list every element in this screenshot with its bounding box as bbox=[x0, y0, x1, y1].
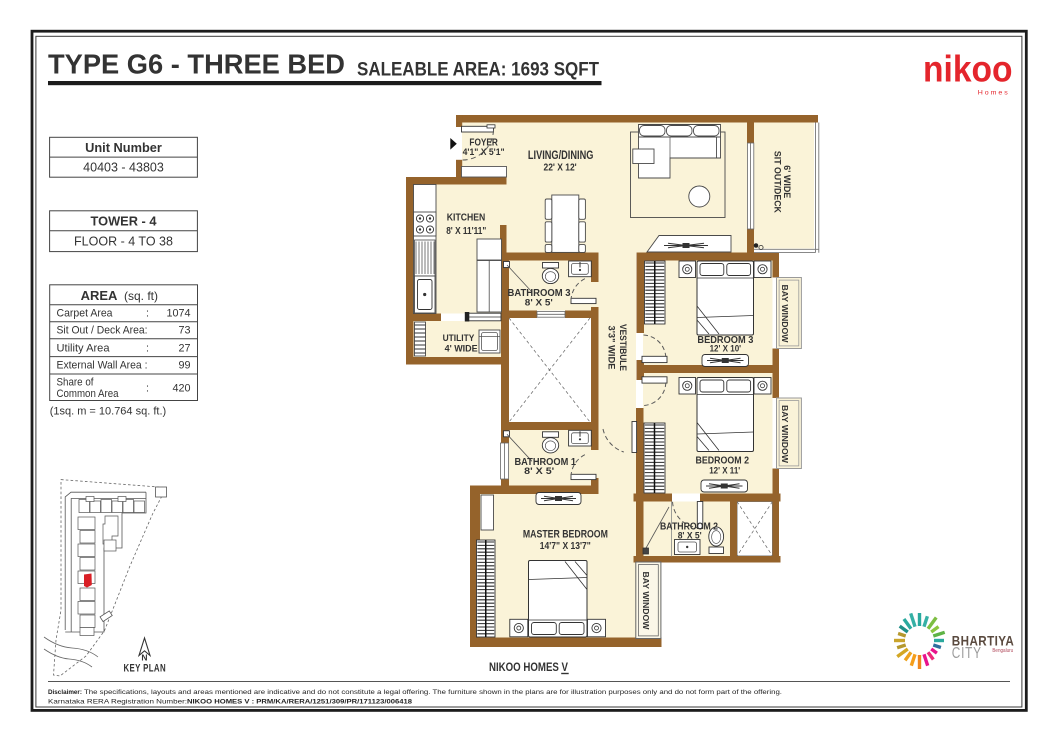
svg-text:(1sq. m = 10.764 sq. ft.): (1sq. m = 10.764 sq. ft.) bbox=[50, 406, 166, 418]
svg-text:14'7" X 13'7": 14'7" X 13'7" bbox=[540, 541, 591, 552]
svg-text:Sit Out / Deck Area:: Sit Out / Deck Area: bbox=[57, 325, 148, 337]
svg-text:NIKOO HOMES V: NIKOO HOMES V bbox=[489, 660, 568, 674]
svg-text:12' X 11': 12' X 11' bbox=[709, 465, 740, 476]
svg-text:4'1" X 5'1": 4'1" X 5'1" bbox=[463, 147, 505, 158]
svg-text::: : bbox=[146, 342, 149, 354]
svg-text:TOWER - 4: TOWER - 4 bbox=[91, 214, 158, 229]
svg-text:Carpet Area: Carpet Area bbox=[57, 308, 113, 320]
svg-text:8' X 5': 8' X 5' bbox=[524, 466, 554, 477]
svg-text:99: 99 bbox=[178, 360, 190, 372]
svg-text:TYPE G6 - THREE BED: TYPE G6 - THREE BED bbox=[48, 49, 345, 80]
svg-text:LIVING/DINING: LIVING/DINING bbox=[528, 150, 594, 162]
svg-text:KEY PLAN: KEY PLAN bbox=[124, 662, 167, 674]
svg-text:H o m e s: H o m e s bbox=[978, 90, 1009, 97]
svg-text:N: N bbox=[141, 653, 147, 663]
svg-text:4' WIDE: 4' WIDE bbox=[445, 344, 478, 355]
svg-text:SALEABLE AREA: 1693 SQFT: SALEABLE AREA: 1693 SQFT bbox=[357, 59, 599, 81]
svg-text:73: 73 bbox=[178, 325, 190, 337]
svg-text:Common Area: Common Area bbox=[57, 388, 119, 400]
svg-text::: : bbox=[146, 383, 149, 395]
svg-text:8' X 11'11": 8' X 11'11" bbox=[446, 226, 486, 237]
svg-text:FLOOR - 4 TO 38: FLOOR - 4 TO 38 bbox=[74, 235, 173, 249]
svg-text:Disclaimer:: Disclaimer: bbox=[48, 689, 82, 696]
svg-text:CITY: CITY bbox=[952, 645, 982, 662]
svg-text:nikoo: nikoo bbox=[923, 49, 1013, 90]
svg-text:(sq. ft): (sq. ft) bbox=[124, 289, 158, 303]
svg-text:External Wall Area :: External Wall Area : bbox=[57, 360, 148, 372]
svg-text:Utility Area: Utility Area bbox=[57, 342, 110, 354]
svg-text:UTILITY: UTILITY bbox=[443, 333, 475, 344]
svg-text:12' X 10': 12' X 10' bbox=[710, 344, 742, 355]
svg-text:40403 - 43803: 40403 - 43803 bbox=[83, 161, 164, 175]
svg-text:BAY WINDOW: BAY WINDOW bbox=[780, 285, 790, 344]
svg-text:The specifications, layouts an: The specifications, layouts and areas me… bbox=[84, 689, 782, 696]
svg-text:6' WIDE: 6' WIDE bbox=[781, 165, 792, 198]
svg-text:Unit Number: Unit Number bbox=[85, 140, 162, 155]
svg-text:1074: 1074 bbox=[166, 308, 190, 320]
svg-text:BAY WINDOW: BAY WINDOW bbox=[641, 572, 651, 631]
svg-text:8' X 5': 8' X 5' bbox=[678, 531, 702, 542]
svg-text:NIKOO HOMES V : PRM/KA/RERA/12: NIKOO HOMES V : PRM/KA/RERA/1251/309/PR/… bbox=[187, 698, 412, 705]
svg-text:22' X 12': 22' X 12' bbox=[544, 162, 577, 174]
svg-text:AREA: AREA bbox=[81, 288, 118, 303]
svg-text::: : bbox=[146, 308, 149, 320]
svg-text:3'3" WIDE: 3'3" WIDE bbox=[606, 326, 617, 370]
svg-text:Karnataka RERA Registration Nu: Karnataka RERA Registration Number: bbox=[48, 698, 187, 705]
svg-text:BAY WINDOW: BAY WINDOW bbox=[780, 405, 790, 464]
svg-text:27: 27 bbox=[178, 342, 190, 354]
svg-text:VESTIBULE: VESTIBULE bbox=[617, 324, 628, 371]
svg-text:KITCHEN: KITCHEN bbox=[447, 211, 486, 223]
svg-text:Bengaluru: Bengaluru bbox=[992, 648, 1013, 654]
svg-text:MASTER BEDROOM: MASTER BEDROOM bbox=[523, 528, 608, 540]
svg-text:420: 420 bbox=[172, 383, 190, 395]
svg-text:Share of: Share of bbox=[57, 377, 95, 389]
svg-text:8' X 5': 8' X 5' bbox=[525, 298, 553, 309]
